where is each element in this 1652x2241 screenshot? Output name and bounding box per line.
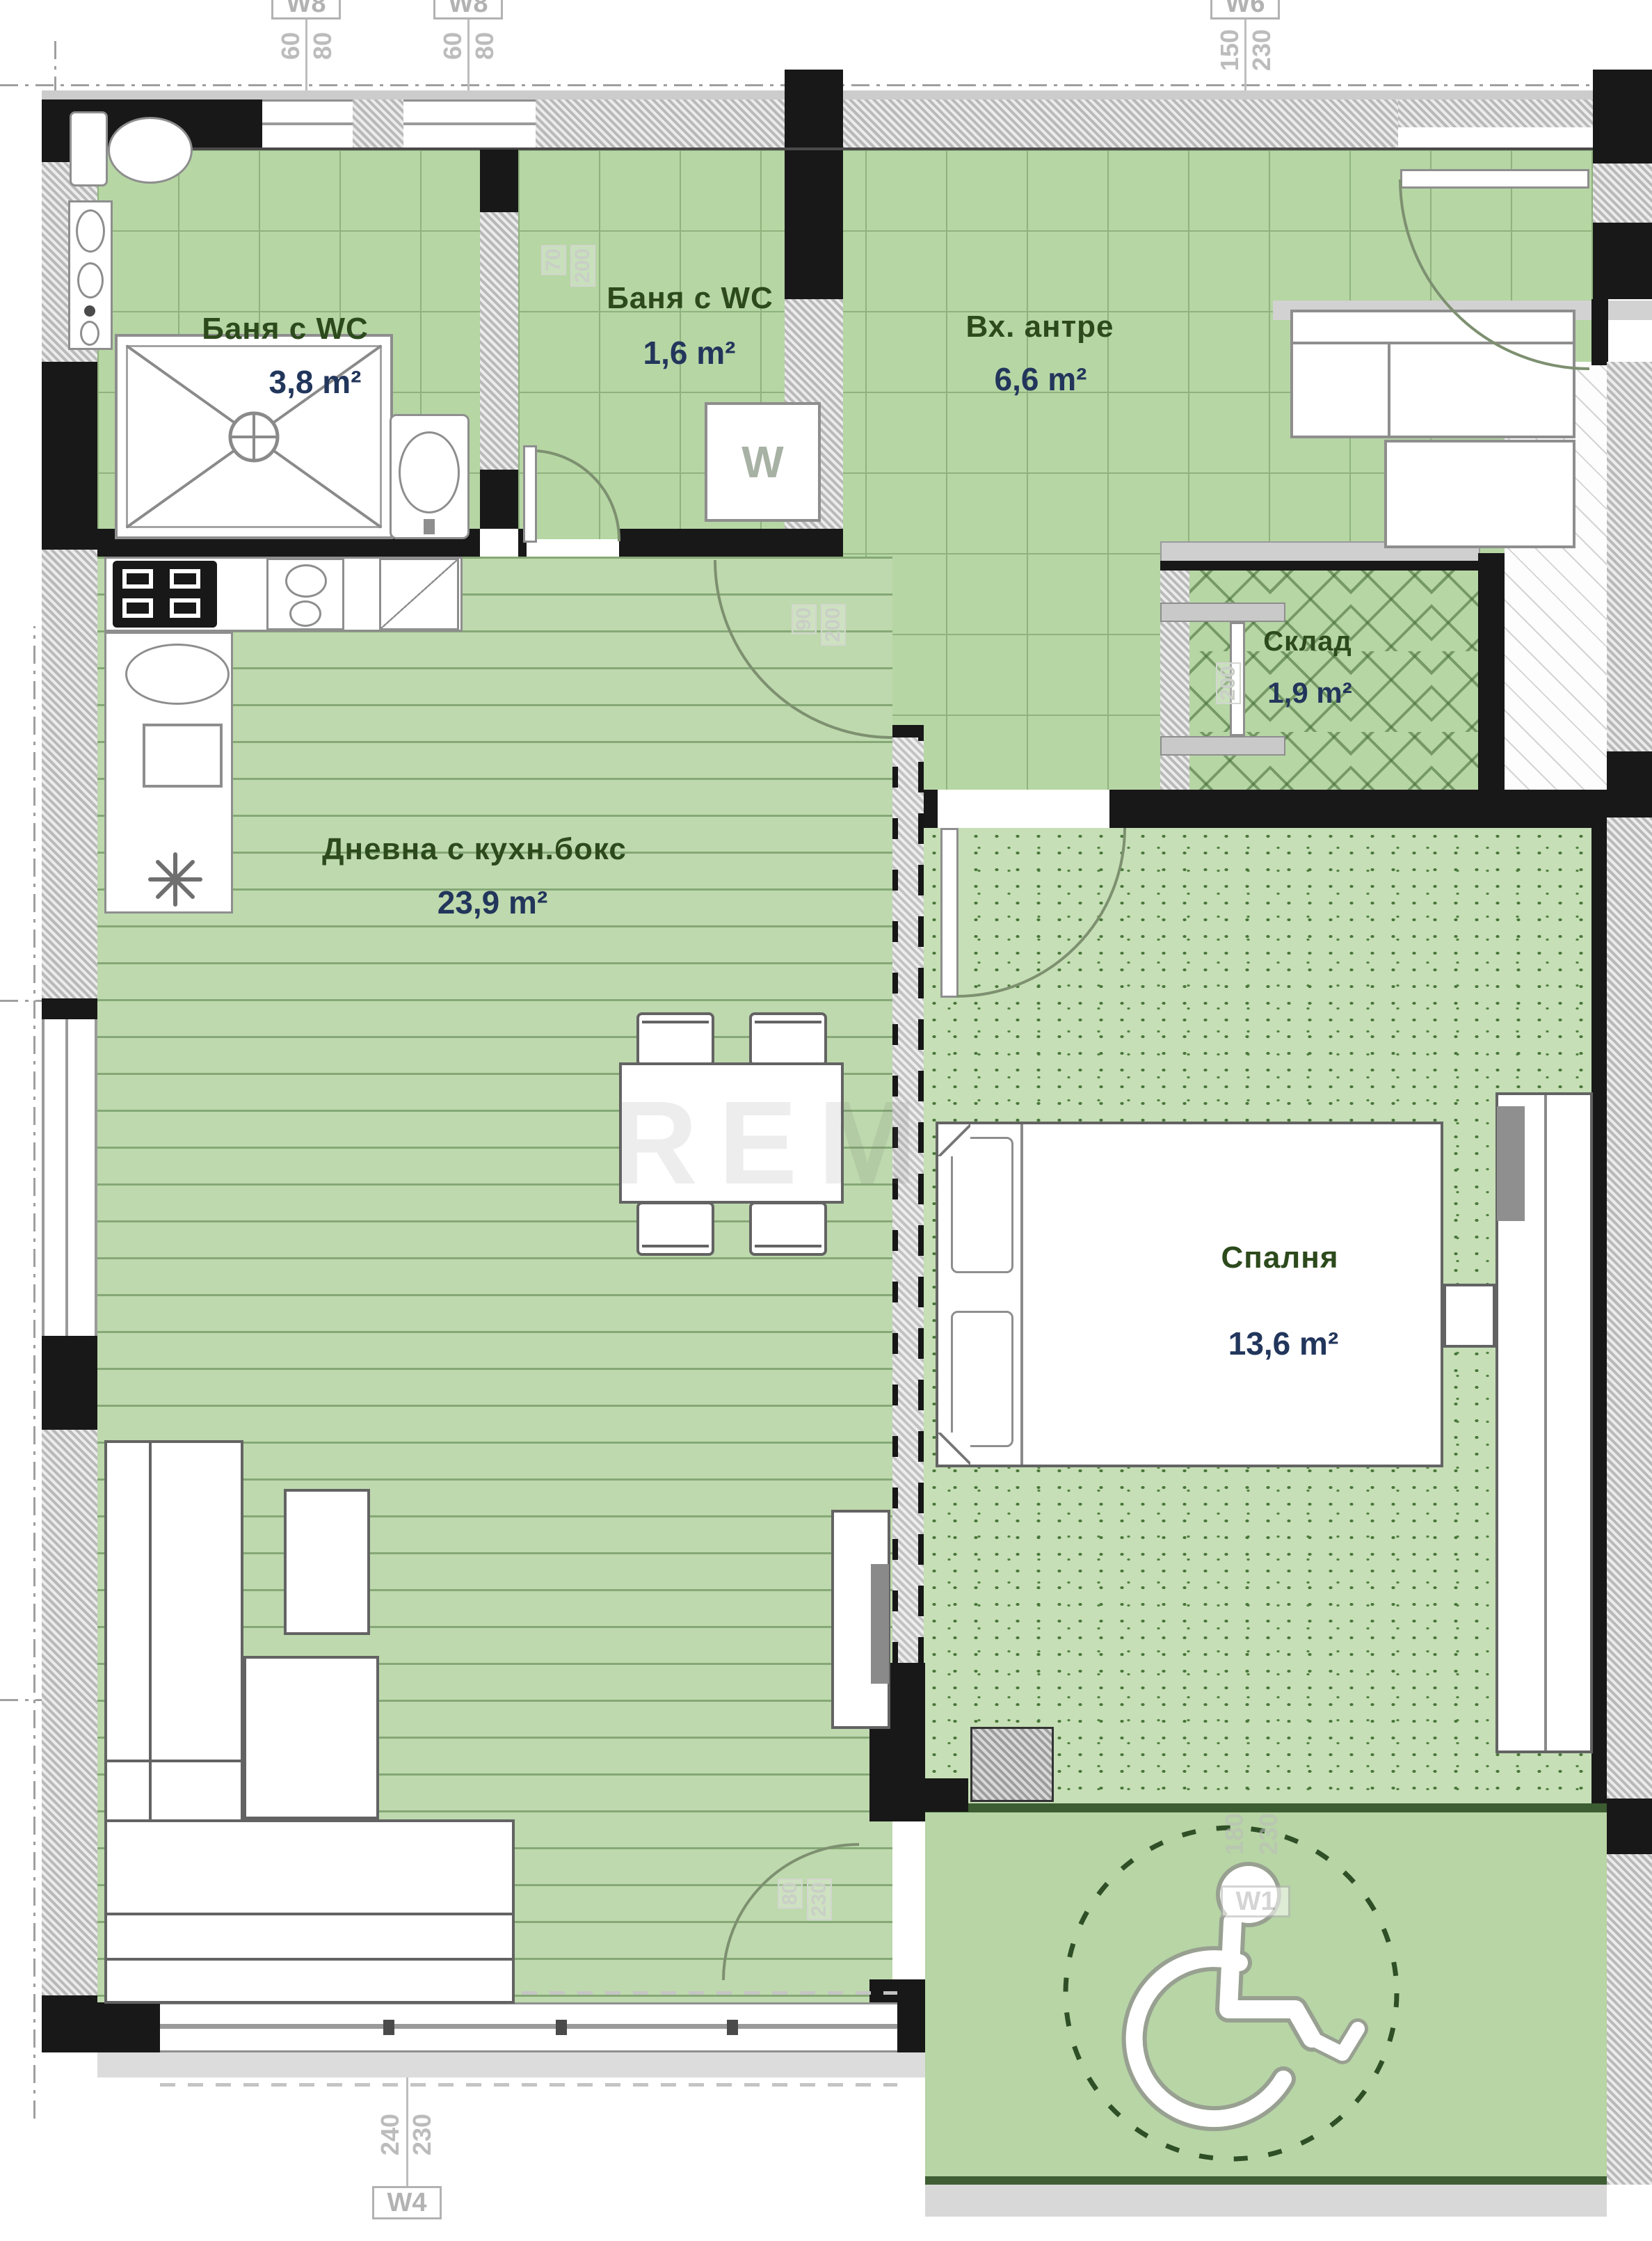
axis-w6 (1244, 18, 1246, 102)
stove (113, 561, 217, 628)
wall-left-corner-bot (42, 1995, 97, 2052)
washer-label: W (741, 436, 783, 488)
bedroom-area: 13,6 m² (1109, 1325, 1457, 1362)
column-bath2-hall (785, 70, 843, 299)
dim-w6-2: 230 (1249, 29, 1274, 71)
window-bottom-sill (97, 2052, 925, 2077)
wall-left-5 (42, 1357, 97, 1430)
storage-area: 1,9 m² (1171, 676, 1449, 710)
wall-top-bottom-edge (42, 147, 1593, 150)
wall-hall-right (1591, 299, 1608, 365)
window-left-cap-top (42, 998, 97, 1019)
wall-storage-right (1478, 553, 1505, 793)
dim-storage-door: 200 (1216, 662, 1241, 704)
marker-w6: W6 (1210, 0, 1280, 19)
wall-top-entry-header (1398, 99, 1593, 127)
terrace-bottom-line (925, 2176, 1607, 2185)
wall-bedroom-top-b (1109, 790, 1593, 828)
dining-chair-2 (749, 1012, 827, 1067)
terrace-post-left (925, 1778, 968, 1812)
bath1-area: 3,8 m² (176, 363, 454, 401)
tv-bedroom (1497, 1106, 1525, 1221)
dim-w4-2: 230 (410, 2114, 435, 2155)
storage-name: Склад (1169, 626, 1447, 657)
dim-w4-1: 240 (378, 2114, 403, 2155)
bath2-name: Баня с WC (516, 281, 864, 316)
hall-area: 6,6 m² (901, 360, 1180, 398)
window-top-1 (262, 99, 353, 150)
dim-w8b-1: 60 (440, 32, 465, 60)
wall-baths-cap-bot (480, 470, 518, 529)
living-name: Дневна с кухн.бокс (231, 832, 718, 867)
window-bottom (160, 2002, 897, 2052)
entry-opening (1398, 127, 1593, 150)
bedroom-door-leaf (940, 828, 959, 998)
toilet-bowl (108, 117, 193, 184)
marker-w8b: W8 (433, 0, 503, 19)
hall-closet-1 (1290, 310, 1575, 438)
wall-baths-mid (480, 212, 518, 470)
wall-top-seg2 (536, 99, 785, 150)
kitchen-sink (266, 558, 344, 630)
dim-w6-1: 150 (1217, 29, 1242, 71)
dim-w1-2: 230 (1256, 1813, 1281, 1855)
bedroom-name: Спалня (1106, 1241, 1454, 1275)
kitchen-oval-basin (125, 644, 230, 705)
bath1-name: Баня с WC (111, 312, 459, 346)
bed (936, 1122, 1443, 1467)
partition-jamb-top (892, 725, 924, 737)
terrace-bottom-sill (925, 2185, 1607, 2217)
neighbor-block-2 (1607, 1799, 1652, 1854)
kitchen-appliance-square (143, 724, 223, 788)
entrance-door-leaf (1400, 169, 1589, 189)
corner-top-right-3 (1593, 223, 1652, 299)
window-left-cap-bot (42, 1336, 97, 1357)
dim-bath2-door-w: 70 (541, 245, 566, 275)
wall-bath2-right-cap (785, 529, 843, 557)
wall-bottom-corner (97, 2002, 160, 2052)
bath1-sink (390, 414, 470, 539)
marker-w1: W1 (1221, 1885, 1290, 1917)
sofa-horizontal (104, 1819, 515, 2004)
coffee-table (284, 1489, 370, 1635)
dim-terrace-door-w: 80 (778, 1879, 803, 1908)
dining-chair-1 (636, 1012, 714, 1067)
toilet-tank (70, 111, 108, 186)
wall-storage-top (1160, 561, 1480, 571)
wall-bedroom-terrace (925, 1803, 1607, 1812)
dim-hall-door-h: 200 (821, 604, 846, 646)
bath1-vanity (68, 200, 113, 350)
neighbor-strip (1607, 362, 1652, 2185)
wall-left-6 (42, 1430, 97, 1995)
dim-w1-1: 180 (1222, 1813, 1247, 1855)
axis-w8b (467, 18, 470, 102)
terrace-floor (925, 1809, 1607, 2181)
watermark: REM (612, 1075, 938, 1211)
storage-door-bar-top (1160, 603, 1285, 622)
floor-plan: W (0, 0, 1652, 2241)
washing-machine: W (705, 402, 821, 522)
sofa-chaise (243, 1656, 379, 1819)
window-left (42, 998, 97, 1357)
wall-left-4 (42, 550, 97, 998)
terrace-cabinet (970, 1727, 1054, 1802)
hall-closet-2 (1384, 440, 1575, 548)
kitchen-counter-diag (379, 558, 459, 630)
marker-w8a: W8 (271, 0, 341, 19)
wall-bath2-bottom-b (619, 529, 785, 557)
dim-w8a-1: 60 (278, 32, 303, 60)
dim-w8a-2: 80 (310, 32, 335, 60)
bath2-area: 1,6 m² (550, 334, 828, 372)
dim-hall-door-w: 90 (792, 604, 817, 634)
window-bottom-dash-bot (160, 2083, 897, 2087)
corner-top-right-1 (1593, 70, 1652, 164)
living-area: 23,9 m² (319, 884, 666, 921)
tv-living (871, 1564, 889, 1684)
wall-top-seg1 (353, 99, 403, 150)
marker-w4: W4 (372, 2186, 442, 2219)
corner-top-right-2 (1593, 164, 1652, 223)
wall-left-3 (42, 362, 97, 550)
window-top-2 (403, 99, 536, 150)
hall-name: Вх. антре (866, 310, 1214, 344)
wall-bedroom-right (1591, 790, 1608, 1809)
wall-top-hall (843, 99, 1398, 150)
dim-bath2-door-h: 200 (570, 245, 595, 287)
wall-baths-cap-top (480, 150, 518, 212)
bath2-door-leaf (523, 445, 537, 543)
dim-terrace-door-h: 230 (807, 1879, 832, 1920)
wall-bedroom-top-a (924, 790, 938, 828)
top-facade-line (42, 90, 1652, 99)
axis-w8a (305, 18, 307, 102)
neighbor-block-1 (1607, 751, 1652, 818)
axis-vertical-far-left (33, 626, 35, 2119)
dim-w8b-2: 80 (472, 32, 497, 60)
storage-door-bar-bot (1160, 736, 1285, 756)
